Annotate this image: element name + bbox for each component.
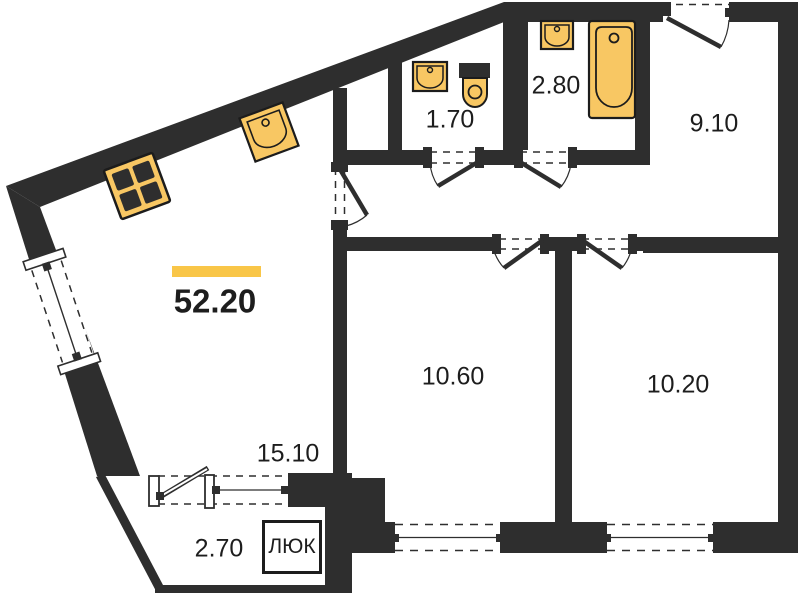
- wall-top: [504, 2, 798, 22]
- wall-kitchen-vertical: [333, 88, 347, 525]
- room-label-living-kitchen: 15.10: [257, 442, 320, 467]
- wall-bottom-left-block: [347, 478, 385, 528]
- room-label-bedroom-right: 10.20: [647, 373, 710, 398]
- wall-bath-hall: [635, 2, 650, 163]
- wall-balcony-opening-block: [288, 473, 333, 507]
- total-area-underline: [172, 266, 261, 277]
- walls-layer: [6, 2, 798, 593]
- bath-sink-icon: [541, 21, 573, 49]
- room-label-bedroom-left: 10.60: [422, 365, 485, 390]
- wall-wc-bath-divider: [503, 22, 528, 154]
- total-area-label: 52.20: [174, 285, 257, 318]
- wall-bedroom-divider: [555, 251, 572, 522]
- bedroom-right-door: [577, 234, 637, 268]
- wall-hall-bottom: [643, 237, 798, 253]
- room-label-wc: 1.70: [426, 108, 475, 133]
- wall-wetrooms-bottom: [333, 150, 650, 165]
- bathroom-door: [514, 147, 577, 187]
- room-label-balcony: 2.70: [195, 537, 244, 562]
- hatch-label: ЛЮК: [268, 535, 315, 559]
- hatch-box: ЛЮК: [262, 520, 322, 574]
- bathtub-icon: [589, 21, 635, 118]
- wall-right: [778, 2, 798, 553]
- wc-sink-icon: [413, 62, 447, 91]
- wall-top-diagonal: [6, 2, 504, 207]
- window-bedroom-right: [603, 522, 716, 553]
- room-label-hallway: 9.10: [690, 112, 739, 137]
- room-label-bathroom: 2.80: [532, 74, 581, 99]
- floorplan-svg: [0, 0, 801, 600]
- wc-door: [423, 147, 484, 186]
- wall-balcony-bottom: [155, 585, 352, 593]
- window-living-left: [23, 248, 100, 374]
- wall-wc-left: [388, 60, 402, 165]
- entrance-door: [661, 2, 735, 47]
- living-room-door: [331, 162, 367, 230]
- window-bedroom-left: [391, 522, 504, 553]
- toilet-icon: [459, 63, 490, 107]
- balcony-door-window: [140, 468, 289, 508]
- bedroom-left-door: [492, 234, 549, 268]
- floorplan: 52.20 15.10 1.70 2.80 9.10 10.60 10.20 2…: [0, 0, 801, 600]
